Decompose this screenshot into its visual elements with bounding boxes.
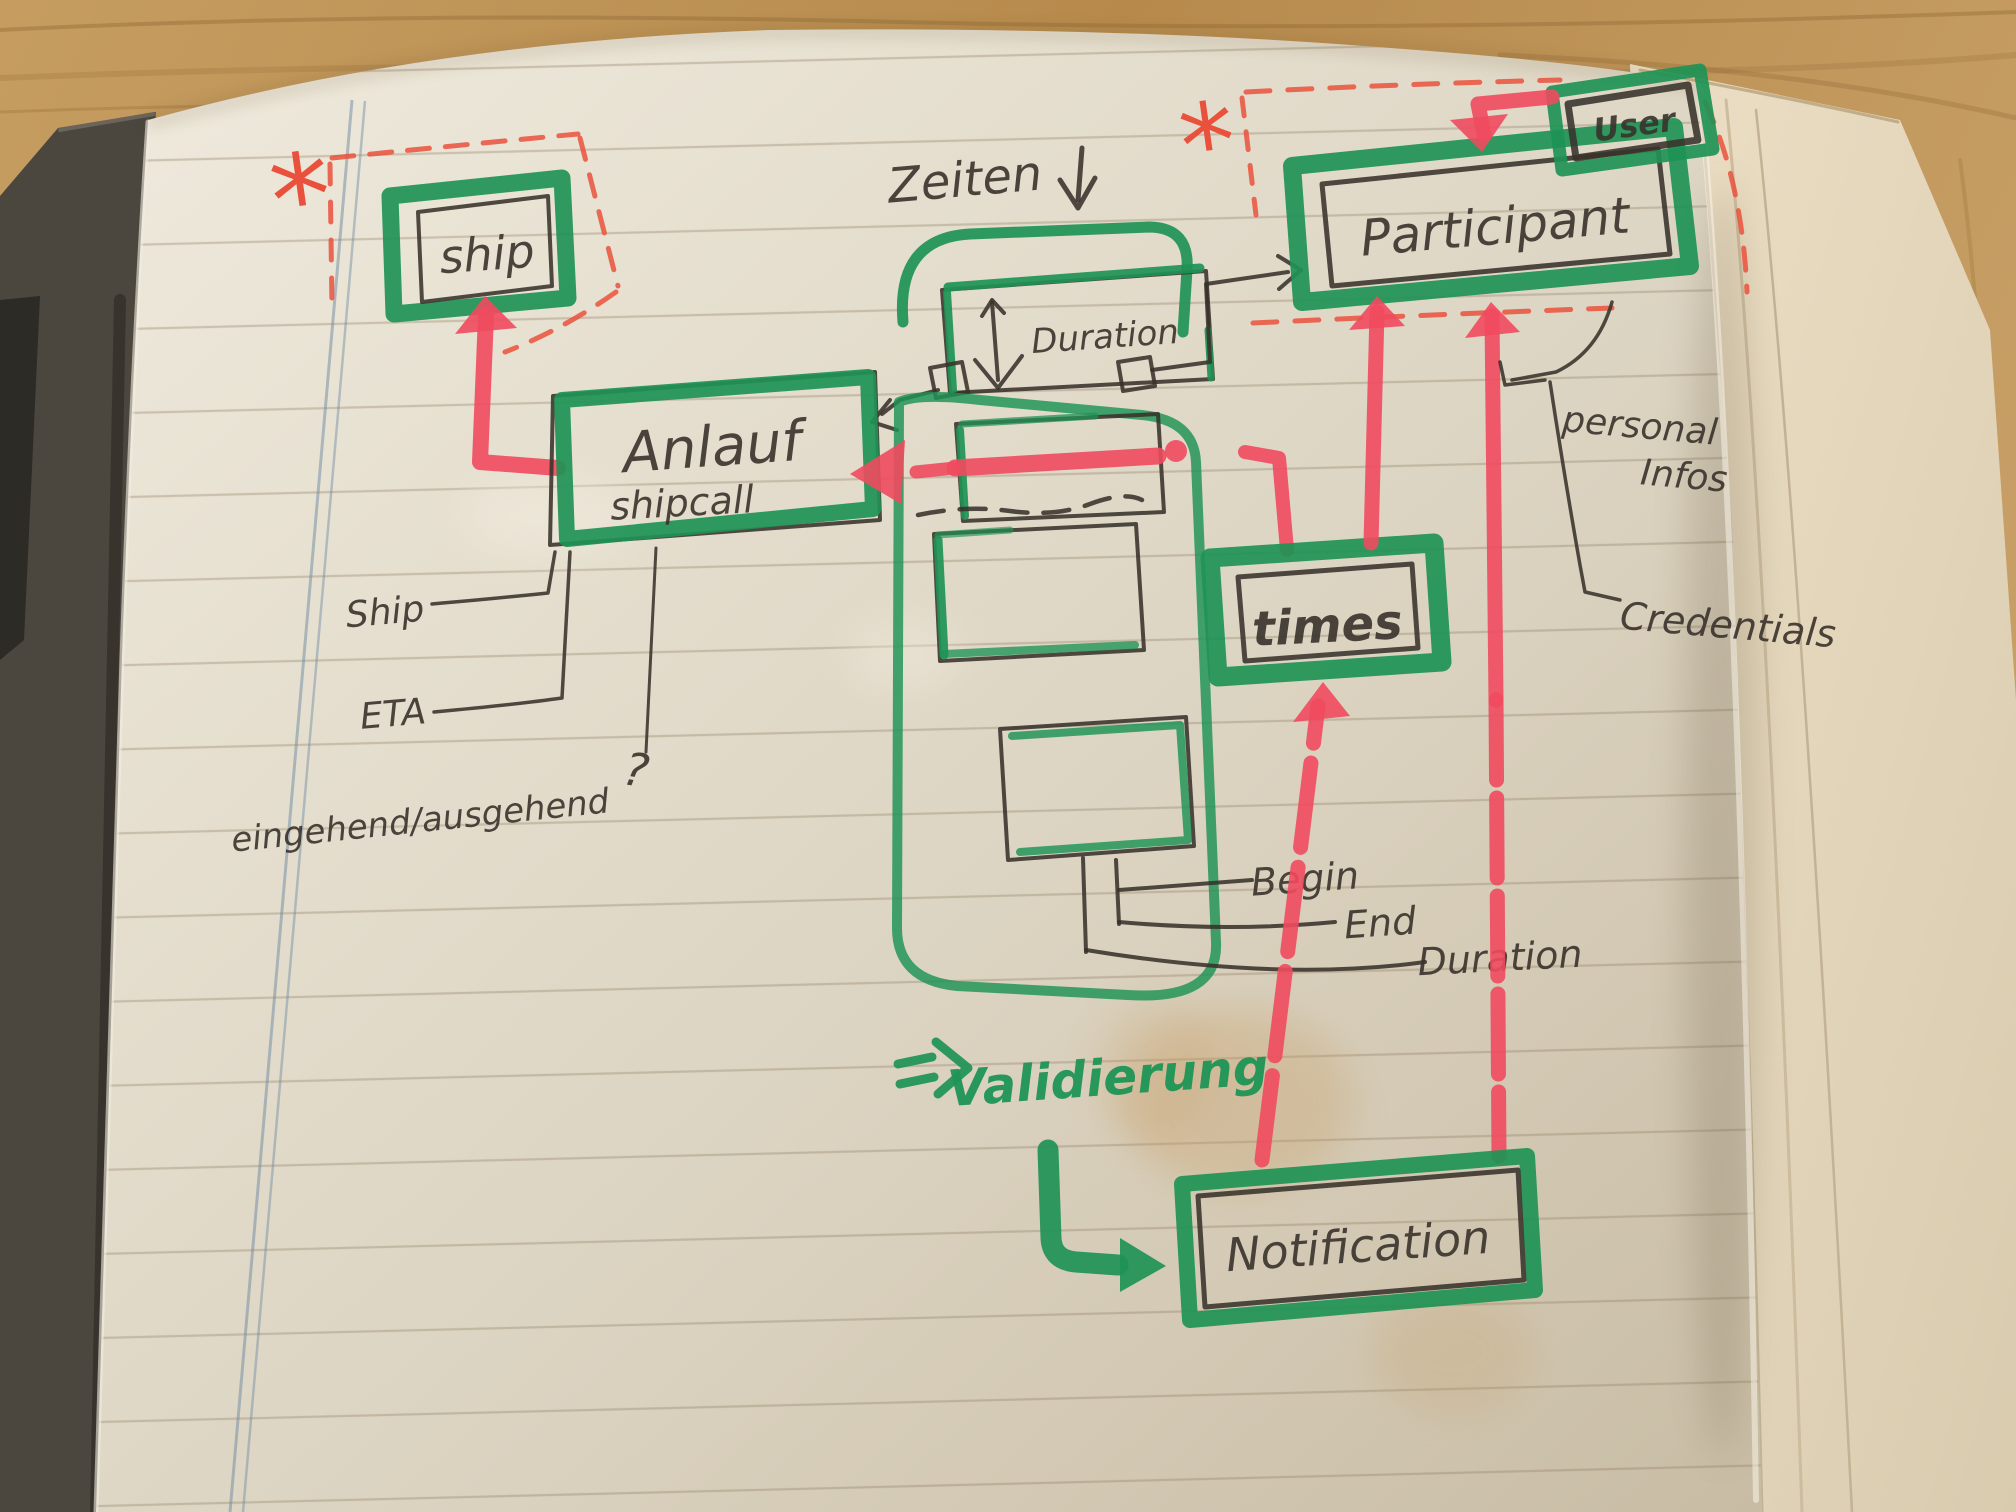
paper-smudge	[463, 474, 633, 558]
ship-label: ship	[438, 224, 537, 285]
ship-attribute-label: Ship	[344, 589, 426, 637]
notebook-photo: * ship Zeiten	[0, 0, 2016, 1512]
begin-label: Begin	[1249, 853, 1360, 904]
times-label: times	[1251, 594, 1404, 658]
end-label: End	[1343, 898, 1419, 947]
shipcall-label: shipcall	[609, 477, 755, 528]
personal-infos-label-line2: Infos	[1639, 452, 1729, 500]
eta-attribute-label: ETA	[358, 691, 427, 738]
anlauf-label: Anlauf	[617, 408, 810, 486]
